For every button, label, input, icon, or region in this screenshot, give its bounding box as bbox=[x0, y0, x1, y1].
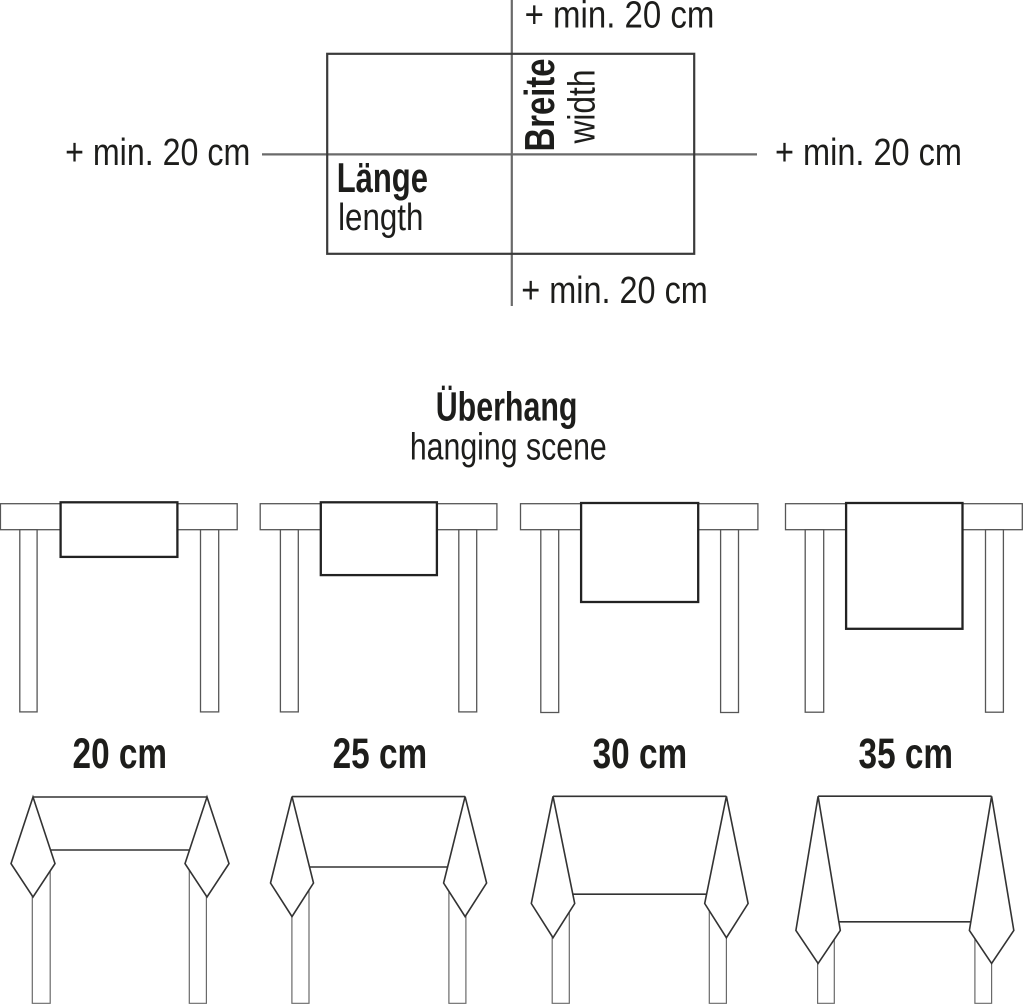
svg-text:35 cm: 35 cm bbox=[859, 730, 954, 778]
svg-text:+ min. 20 cm: + min. 20 cm bbox=[521, 270, 708, 312]
svg-text:20 cm: 20 cm bbox=[73, 730, 168, 778]
svg-text:Breite: Breite bbox=[516, 59, 563, 152]
svg-text:Überhang: Überhang bbox=[436, 384, 578, 430]
svg-text:length: length bbox=[338, 197, 423, 239]
svg-text:+ min. 20 cm: + min. 20 cm bbox=[65, 132, 250, 174]
svg-text:+ min. 20 cm: + min. 20 cm bbox=[775, 132, 962, 174]
svg-text:25 cm: 25 cm bbox=[333, 730, 428, 778]
svg-text:Länge: Länge bbox=[337, 154, 428, 201]
svg-text:30 cm: 30 cm bbox=[593, 730, 688, 778]
svg-text:width: width bbox=[562, 70, 604, 145]
svg-text:hanging scene: hanging scene bbox=[410, 426, 607, 468]
svg-text:+ min. 20 cm: + min. 20 cm bbox=[525, 0, 715, 37]
